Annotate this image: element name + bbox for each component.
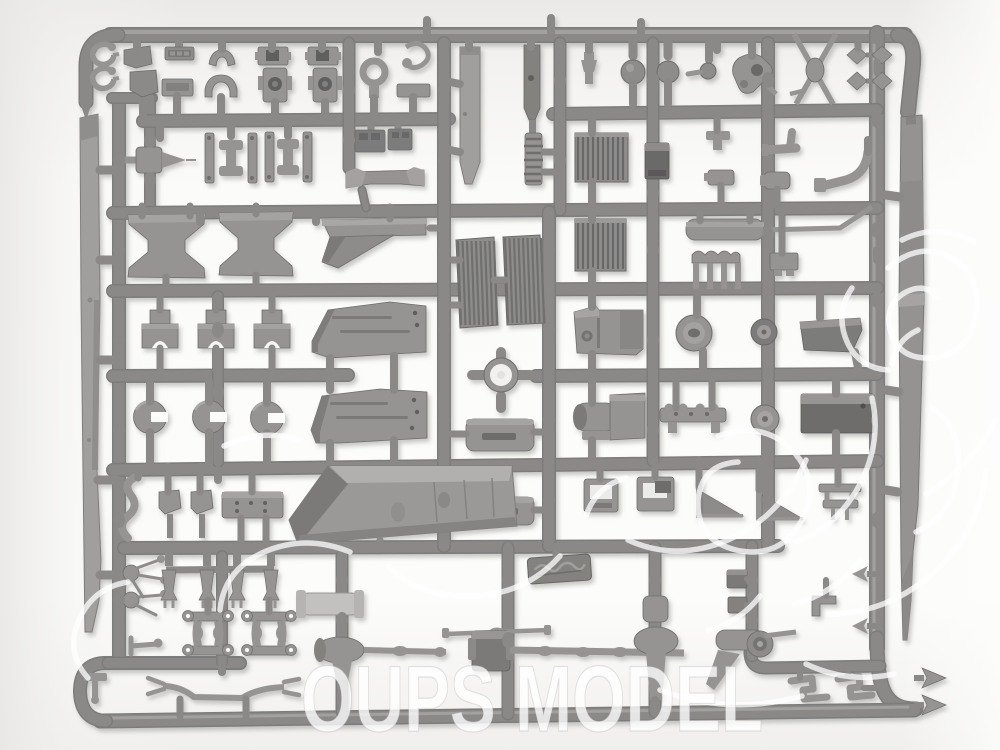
svg-text:OUPS MODEL: OUPS MODEL [301,646,763,750]
